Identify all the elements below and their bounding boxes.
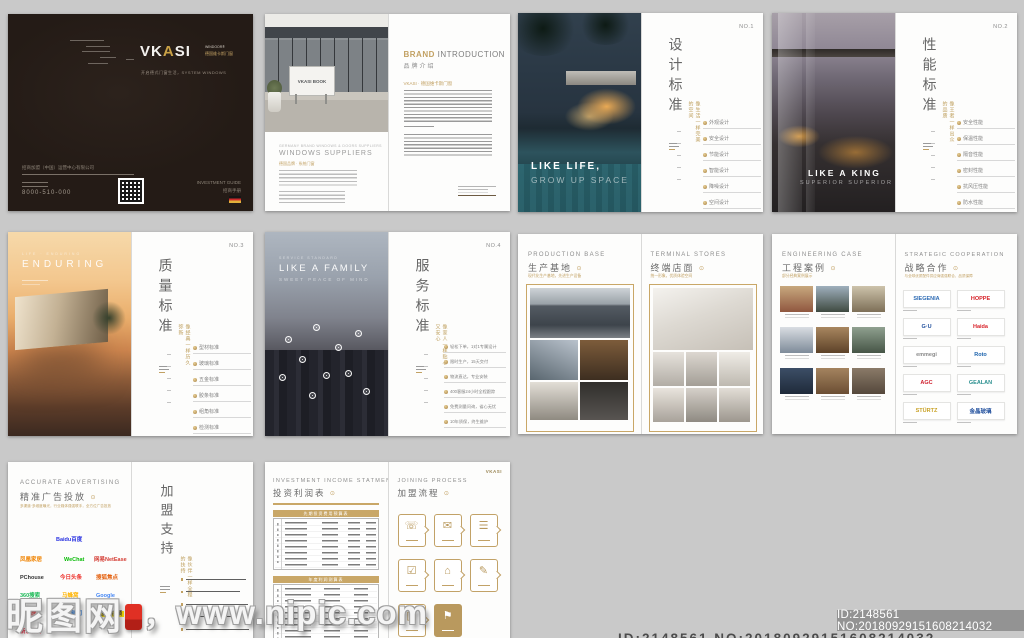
- media-logo: 马蜂窝: [62, 584, 79, 602]
- deco-line: [22, 280, 48, 281]
- store-interior-photo: [653, 388, 684, 422]
- budget-table-header: 先期投资费用预算表: [273, 510, 379, 517]
- store-interior-photo: [719, 352, 750, 386]
- partner-logo: STÜRTZ: [903, 402, 951, 420]
- media-logo: Google: [96, 584, 115, 602]
- brand-sub-en: WINDOOR®: [205, 45, 225, 49]
- signature-line: [458, 186, 496, 187]
- case-gold: 部分经典案例展示: [782, 274, 812, 279]
- advertising-page: ACCURATE ADVERTISING 精准广告投放 ⊙ 多渠道·多维度曝光，…: [8, 462, 131, 638]
- profit-table-header: 年度利润测算表: [273, 576, 379, 583]
- brand-logo: VKASI: [140, 43, 191, 60]
- advertising-gold: 多渠道·多维度曝光，行业媒体强强联手，全方位广告投放: [20, 504, 111, 509]
- map-pin-icon: [363, 388, 370, 395]
- coop-gold: 与全球优质配件供应商强强联合，品质保障: [905, 274, 973, 279]
- signature-line: [458, 195, 496, 196]
- production-photo-box: [526, 284, 634, 432]
- table-side-label: [274, 519, 282, 569]
- process-step-4: ☑: [398, 559, 426, 592]
- page-number: NO.4: [486, 243, 501, 249]
- partner-logo: emmegi: [903, 346, 951, 364]
- production-gold: 现代化生产基地，先进生产设备: [528, 274, 581, 279]
- cover-tagline: 开启德式门窗生活，SYSTEM WINDOWS: [141, 70, 226, 76]
- villa-pool-photo: LIKE LIFE, GROW UP SPACE: [518, 13, 641, 212]
- german-flag-icon: [229, 196, 241, 203]
- opening-icon: ⚑: [435, 609, 461, 624]
- suppliers-gold: 德国品牌 · 系统门窗: [279, 161, 315, 167]
- map-pin-icon: [279, 374, 286, 381]
- service-standard-spread: SERVICE STANDARD LIKE A FAMILY SWEET PEA…: [265, 232, 510, 436]
- map-pin-icon: [313, 324, 320, 331]
- gold-dot-icon: ⊙: [699, 266, 706, 272]
- gold-rule: [273, 503, 379, 505]
- process-step-6: ✎: [470, 559, 498, 592]
- placeholder-text-lines: [404, 126, 434, 129]
- advertising-cn: 精准广告投放 ⊙: [20, 490, 98, 503]
- hero-enduring: ENDURING: [22, 259, 107, 270]
- process-step-5: ⌂: [434, 559, 462, 592]
- hero-like-life: LIKE LIFE,: [531, 161, 601, 172]
- process-step-3: ☰: [470, 514, 498, 547]
- deco-line: [126, 59, 134, 60]
- factory-photo: [530, 288, 630, 338]
- partner-logo: 金晶玻璃: [957, 402, 1005, 420]
- brand-intro-title: BRAND INTRODUCTION: [404, 50, 505, 59]
- brand-sub-cn: 德国维卡斯门窗: [205, 51, 233, 57]
- brand-left-page: VKASI BOOK GERMANY BRAND WINDOWS & DOORS…: [265, 14, 388, 211]
- media-logo: Baidu百度: [56, 528, 82, 546]
- suppliers-small: GERMANY BRAND WINDOWS & DOORS SUPPLIERS: [279, 144, 382, 148]
- sunset-pavilion-photo: LIFE · ENDURING ENDURING: [8, 232, 131, 436]
- case-photo: [816, 327, 849, 353]
- media-logo: 新浪微博: [20, 620, 42, 638]
- guide-dashes: [424, 354, 428, 414]
- map-pin-icon: [299, 356, 306, 363]
- case-photo: [780, 286, 813, 312]
- case-photo: [816, 368, 849, 394]
- process-step-8: ⚑: [434, 604, 462, 637]
- apply-doc-icon: ✉: [435, 519, 461, 534]
- media-logo: 凤凰家居: [20, 548, 42, 566]
- qr-code-icon: [118, 178, 144, 204]
- design-title: 设计标准: [666, 37, 686, 139]
- placeholder-text-lines: [279, 191, 345, 204]
- production-page: PRODUCTION BASE 生产基地 ⊙ 现代化生产基地，先进生产设备: [518, 234, 641, 434]
- income-process-spread: INVESTMENT INCOME STATMENT 投资利润表 ⊙ 先期投资费…: [265, 462, 510, 638]
- courtyard-dusk-photo: LIKE A KING SUPERIOR SUPERIOR: [772, 13, 895, 212]
- store-interior-photo: [653, 352, 684, 386]
- production-en: PRODUCTION BASE: [528, 252, 606, 258]
- deco-line: [22, 174, 134, 175]
- case-photo: [852, 327, 885, 353]
- hero-like-a-family: LIKE A FAMILY: [279, 263, 369, 274]
- cover-company: 招商加盟（中国）运营中心有限公司: [22, 165, 94, 171]
- hero-superior: SUPERIOR SUPERIOR: [800, 180, 893, 186]
- quality-standard-spread: LIFE · ENDURING ENDURING NO.3 质量标准 像经典一样…: [8, 232, 253, 436]
- hero-grow-up: GROW UP SPACE: [531, 175, 629, 185]
- quality-gold-vertical: 像经典一样历久弥新: [177, 324, 191, 370]
- guide-dashes: [167, 354, 171, 414]
- coop-en: STRATEGIC COOPERATION: [905, 252, 1005, 258]
- map-pin-icon: [335, 344, 342, 351]
- support-page: 加盟支持 像伙伴一样全程的扶持: [131, 462, 254, 638]
- suppliers-title: WINDOWS SUPPLIERS: [279, 150, 373, 157]
- map-pin-icon: [285, 336, 292, 343]
- engineering-case-page: ENGINEERING CASE 工程案例 ⊙ 部分经典案例展示: [772, 234, 895, 434]
- media-logo: 爱家居: [20, 602, 37, 620]
- partner-logo: AGC: [903, 374, 951, 392]
- villa-roof: [566, 71, 636, 85]
- hero-sweet: SWEET PEACE OF MIND: [279, 277, 370, 282]
- consult-icon: ☏: [399, 519, 425, 534]
- performance-items: 安全性能 保温性能 隔音性能 密封性能 抗风压性能 防水性能: [957, 119, 1015, 212]
- page-number: NO.1: [739, 24, 754, 30]
- review-icon: ☰: [471, 519, 497, 534]
- stores-photo-box: [649, 284, 757, 432]
- stocking-icon: ▥: [399, 609, 425, 624]
- deco-line: [88, 63, 108, 64]
- warehouse-photo: [580, 340, 628, 380]
- stores-en: TERMINAL STORES: [651, 252, 727, 258]
- partner-logo: GEALAN: [957, 374, 1005, 392]
- performance-title: 性能标准: [920, 37, 940, 139]
- deco-line: [70, 40, 104, 41]
- image-id-bar: ID:2148561 NO:20180929151608214032: [837, 610, 1024, 631]
- stores-page: TERMINAL STORES 终端店面 ⊙ 统一形象，优质体验空间: [641, 234, 764, 434]
- media-logo: 搜狐焦点: [96, 566, 118, 584]
- case-photo: [852, 368, 885, 394]
- deco-line: [82, 51, 110, 52]
- media-logo: 360搜索: [20, 584, 40, 602]
- case-photo-grid: [780, 286, 886, 400]
- map-pin-icon: [309, 392, 316, 399]
- profit-table: 年度利润测算表: [273, 576, 379, 638]
- media-logo: WeChat: [64, 548, 84, 566]
- process-cn: 加盟流程 ⊙: [398, 487, 451, 499]
- deco-line: [22, 182, 48, 183]
- income-en: INVESTMENT INCOME STATMENT: [273, 478, 388, 484]
- mini-brand-logo: VKASI: [486, 469, 502, 474]
- placeholder-text-lines: [279, 170, 357, 186]
- gold-dot-icon: ⊙: [953, 266, 960, 272]
- deco-line: [22, 186, 48, 187]
- media-logo: 今日头条: [60, 566, 82, 584]
- shopfront-photo: [580, 382, 628, 420]
- map-pin-icon: [345, 370, 352, 377]
- partner-logo: Haida: [957, 318, 1005, 336]
- page-number: NO.3: [229, 243, 244, 249]
- design-standard-spread: LIKE LIFE, GROW UP SPACE NO.1 设计标准 像生活一样…: [518, 13, 763, 212]
- gold-dot-icon: ⊙: [444, 491, 451, 497]
- case-cn: 工程案例 ⊙: [782, 261, 838, 274]
- service-title: 服务标准: [413, 258, 433, 362]
- showroom-photo: [530, 382, 578, 420]
- deco-line: [22, 284, 40, 285]
- design-gold-vertical: 像生活一样完美的空间: [687, 101, 701, 147]
- case-photo: [816, 286, 849, 312]
- page-number: NO.2: [993, 24, 1008, 30]
- guide-dashes: [677, 131, 681, 191]
- brand-intro-subtitle: 品牌介绍: [404, 61, 436, 70]
- gold-dot-icon: ⊙: [91, 495, 98, 501]
- title-mark: [160, 586, 170, 593]
- quality-items: 型材标准 玻璃标准 五金标准 胶条标准 组角标准 检测标准: [193, 344, 251, 436]
- placeholder-text-lines: [458, 189, 488, 193]
- guide-cn: 招商手册: [223, 188, 241, 194]
- design-items: 外观设计 安全设计 节能设计 智能设计 降噪设计 空间设计: [703, 119, 761, 212]
- cover-spread: VKASI WINDOOR® 德国维卡斯门窗 开启德式门窗生活，SYSTEM W…: [8, 14, 253, 211]
- stock-preview-canvas: VKASI WINDOOR® 德国维卡斯门窗 开启德式门窗生活，SYSTEM W…: [0, 0, 1024, 638]
- table-side-label: [274, 585, 282, 638]
- cropped-id-text: ID:2148561 NO:20180929151608214032: [618, 631, 1024, 638]
- case-cooperation-spread: ENGINEERING CASE 工程案例 ⊙ 部分经典案例展示 STRATEG…: [772, 234, 1017, 434]
- map-pin-icon: [355, 330, 362, 337]
- quality-title: 质量标准: [156, 258, 176, 362]
- budget-table: 先期投资费用预算表: [273, 510, 379, 570]
- city-skyline-photo: SERVICE STANDARD LIKE A FAMILY SWEET PEA…: [265, 232, 388, 436]
- store-location-icon: ⌂: [435, 564, 461, 579]
- placeholder-text-lines: [404, 90, 492, 124]
- design-right-page: NO.1 设计标准 像生活一样完美的空间 外观设计 安全设计 节能设计 智能设计…: [641, 13, 764, 212]
- advertising-support-spread: ACCURATE ADVERTISING 精准广告投放 ⊙ 多渠道·多维度曝光，…: [8, 462, 253, 638]
- store-interior-photo: [686, 352, 717, 386]
- brand-intro-spread: VKASI BOOK GERMANY BRAND WINDOWS & DOORS…: [265, 14, 510, 211]
- gold-dot-icon: ⊙: [330, 491, 337, 497]
- gold-bullet-icon: [703, 121, 707, 125]
- store-interior-photo: [719, 388, 750, 422]
- store-interior-photo: [686, 388, 717, 422]
- case-photo: [780, 368, 813, 394]
- partner-logo: HOPPE: [957, 290, 1005, 308]
- partner-logo: G·U: [903, 318, 951, 336]
- service-items: 轻松下单，1对1专属设计 限时生产，15天交付 物流直达，专业安装 400客服2…: [444, 344, 508, 434]
- storefront-photo: VKASI BOOK: [265, 14, 388, 132]
- gold-dot-icon: ⊙: [831, 266, 838, 272]
- placeholder-text-lines: [404, 134, 492, 156]
- process-en: JOINING PROCESS: [398, 478, 468, 484]
- production-cn: 生产基地 ⊙: [528, 261, 584, 274]
- performance-right-page: NO.2 性能标准 像王者一样出众的品质 安全性能 保温性能 隔音性能 密封性能…: [895, 13, 1018, 212]
- hero-small: SERVICE STANDARD: [279, 256, 338, 260]
- case-en: ENGINEERING CASE: [782, 252, 863, 258]
- guide-dashes: [931, 131, 935, 191]
- deco-line: [86, 46, 110, 47]
- image-id-text: ID:2148561 NO:20180929151608214032: [837, 609, 1024, 633]
- partner-logo: SIEGENIA: [903, 290, 951, 308]
- case-photo: [780, 327, 813, 353]
- process-step-2: ✉: [434, 514, 462, 547]
- guide-en: INVESTMENT GUIDE: [197, 180, 241, 185]
- partner-logo: Roto: [957, 346, 1005, 364]
- media-logo: PChouse: [20, 566, 44, 584]
- schedule-icon: ✎: [471, 564, 497, 579]
- process-step-7: ▥: [398, 604, 426, 637]
- floorplan-render: [653, 288, 753, 350]
- hero-like-a-king: LIKE A KING: [808, 168, 881, 178]
- income-cn: 投资利润表 ⊙: [273, 487, 337, 499]
- production-stores-spread: PRODUCTION BASE 生产基地 ⊙ 现代化生产基地，先进生产设备 TE…: [518, 234, 763, 434]
- vkasi-sign: VKASI BOOK: [289, 66, 335, 96]
- stores-cn: 终端店面 ⊙: [651, 261, 707, 274]
- coop-cn: 战略合作 ⊙: [905, 261, 961, 274]
- case-photo: [852, 286, 885, 312]
- advertising-en: ACCURATE ADVERTISING: [20, 480, 120, 486]
- support-title: 加盟支持: [157, 484, 176, 582]
- map-pin-icon: [323, 372, 330, 379]
- service-right-page: NO.4 服务标准 像家人一样贴心又安心 轻松下单，1对1专属设计 限时生产，1…: [388, 232, 511, 436]
- gold-dot-icon: ⊙: [577, 266, 584, 272]
- support-bullets: [181, 578, 249, 638]
- process-step-1: ☏: [398, 514, 426, 547]
- joining-process-page: VKASI JOINING PROCESS 加盟流程 ⊙ ☏ ✉ ☰ ☑ ⌂ ✎…: [388, 462, 511, 638]
- performance-gold-vertical: 像王者一样出众的品质: [941, 101, 955, 147]
- hero-small: LIFE · ENDURING: [22, 252, 81, 256]
- brand-para-gold: VKASI · 德国维卡斯门窗: [404, 81, 453, 87]
- building-photo: [530, 340, 578, 380]
- deco-line: [100, 57, 116, 58]
- stores-gold: 统一形象，优质体验空间: [651, 274, 693, 279]
- cooperation-page: STRATEGIC COOPERATION 战略合作 ⊙ 与全球优质配件供应商强…: [895, 234, 1018, 434]
- income-statement-page: INVESTMENT INCOME STATMENT 投资利润表 ⊙ 先期投资费…: [265, 462, 388, 638]
- brand-right-page: BRAND INTRODUCTION 品牌介绍 VKASI · 德国维卡斯门窗: [388, 14, 511, 211]
- media-logo: 腾讯新闻: [60, 602, 82, 620]
- media-logo: 网易NetEase: [94, 548, 127, 566]
- quality-right-page: NO.3 质量标准 像经典一样历久弥新 型材标准 玻璃标准 五金标准 胶条标准 …: [131, 232, 254, 436]
- planter: [268, 92, 281, 112]
- media-logo: 搜狐视频: [98, 602, 124, 620]
- performance-standard-spread: LIKE A KING SUPERIOR SUPERIOR NO.2 性能标准 …: [772, 13, 1017, 212]
- sign-contract-icon: ☑: [399, 564, 425, 579]
- cover-phone: 8000-510-000: [22, 190, 71, 196]
